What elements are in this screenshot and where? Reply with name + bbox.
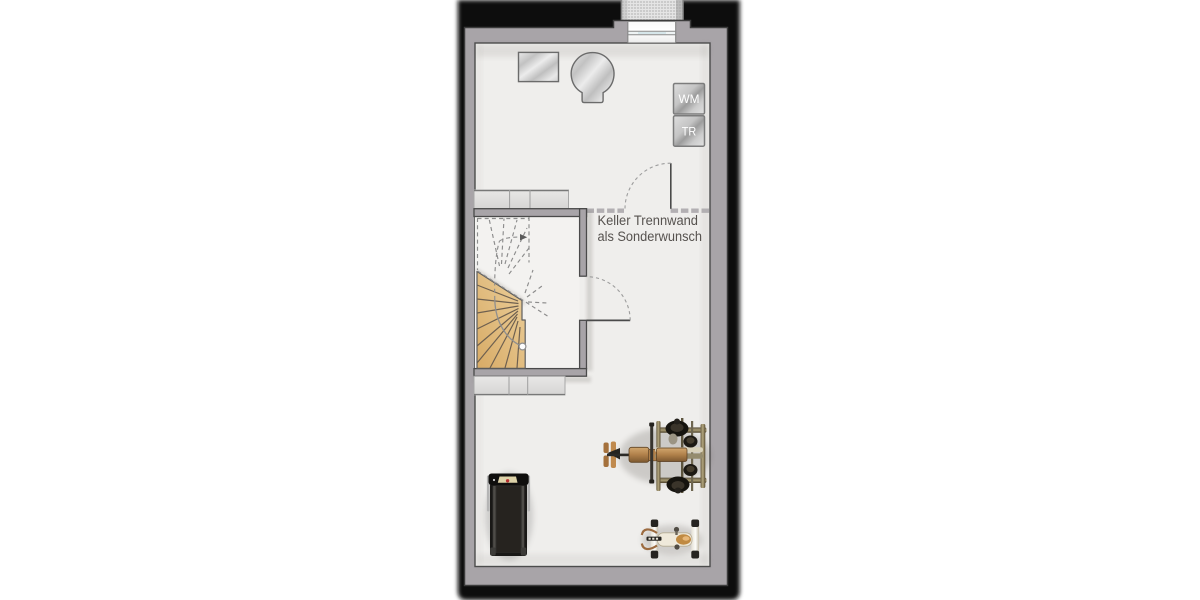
svg-text:Keller Trennwand: Keller Trennwand (598, 213, 699, 228)
svg-text:TR: TR (682, 125, 697, 139)
svg-text:als Sonderwunsch: als Sonderwunsch (598, 229, 703, 244)
svg-text:WM: WM (679, 92, 700, 106)
